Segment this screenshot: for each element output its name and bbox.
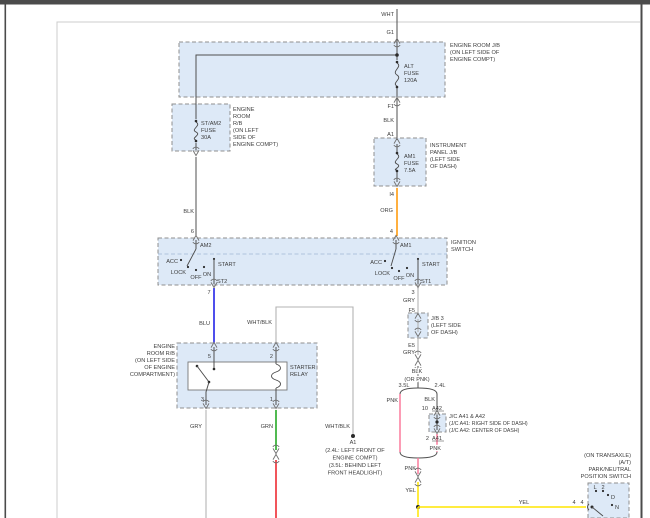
wire-color-label: PNK	[404, 466, 416, 472]
component-label: J/C A41 & A42	[449, 414, 485, 420]
component-label: OF DASH)	[431, 330, 458, 336]
component-label: (ON LEFT SIDE	[135, 358, 175, 364]
jc-junction-dot	[435, 420, 438, 423]
position-label: LOCK	[171, 270, 187, 276]
off-contact	[398, 270, 400, 272]
starter-relay-inner-box	[188, 362, 287, 390]
wiring-diagram: WHT G1 ENGINE ROOM J/B (ON LEFT SIDE OF …	[0, 0, 650, 518]
fuse-label: ALT	[404, 64, 414, 70]
component-label: (ON LEFT SIDE OF	[450, 50, 500, 56]
engine-variant-label: 2.4L	[435, 383, 446, 389]
component-label: (LEFT SIDE	[431, 323, 461, 329]
pin-label: 4	[572, 500, 575, 506]
terminal-label: ST1	[421, 279, 431, 285]
position-label: OFF	[393, 276, 405, 282]
pin-label: 10	[422, 406, 428, 412]
wire-color-label: WHT	[381, 12, 394, 18]
pin-label: 6	[191, 229, 194, 235]
component-label: ENGINE	[233, 107, 255, 113]
pin-label: 2	[270, 354, 273, 360]
fuse-label: FUSE	[404, 71, 419, 77]
ground-note: ENGINE COMPT)	[332, 456, 377, 462]
component-label: PARK/NEUTRAL	[589, 467, 631, 473]
component-label: SIDE OF	[233, 135, 256, 141]
component-label: OF DASH)	[430, 164, 457, 170]
wire-color-label: BLK	[424, 397, 435, 403]
component-label: (LEFT SIDE	[430, 157, 460, 163]
pin-label: 5	[208, 354, 211, 360]
fuse-label: ST/AM2	[201, 121, 221, 127]
frame-top	[0, 0, 650, 5]
component-label: STARTER	[290, 365, 316, 371]
component-label: PANEL J/B	[430, 150, 458, 156]
component-label: IGNITION	[451, 240, 476, 246]
terminal-label: AM2	[200, 243, 212, 249]
junction-dot	[395, 53, 399, 57]
connector-label: F1	[387, 104, 394, 110]
wire-color-label: PNK	[386, 398, 398, 404]
pin-label: 3	[201, 397, 204, 403]
component-label: ENGINE COMPT)	[450, 57, 495, 63]
position-label: 2	[601, 485, 604, 491]
component-label: (ON TRANSAXLE)	[584, 453, 631, 459]
frame-right	[641, 0, 643, 518]
fuse-label: 7.5A	[404, 168, 416, 174]
component-label: ROOM R/B	[147, 351, 176, 357]
wire-color-label: PNK	[429, 446, 441, 452]
pin-label: 2	[426, 436, 429, 442]
component-label: OF ENGINE	[144, 365, 175, 371]
component-label: SWITCH	[451, 247, 473, 253]
component-label: (A/T)	[619, 460, 632, 466]
connector-label: A1	[387, 132, 394, 138]
position-label: D	[611, 495, 615, 501]
fuse-label: FUSE	[201, 128, 216, 134]
wire-color-label: BLK	[183, 209, 194, 215]
component-label: R/B	[233, 121, 243, 127]
pin-label: 1	[270, 397, 273, 403]
component-label: (ON LEFT	[233, 128, 259, 134]
component-label: ENGINE COMPT)	[233, 142, 278, 148]
position-label: ON	[406, 273, 414, 279]
ground-note: FRONT HEADLIGHT)	[328, 471, 383, 477]
on-contact	[406, 267, 408, 269]
component-label: (J/C A41: RIGHT SIDE OF DASH)	[449, 421, 528, 427]
pin-label: 7	[207, 290, 210, 296]
engine-variant-label: 3.5L	[399, 383, 410, 389]
component-label: (J/C A42: CENTER OF DASH)	[449, 428, 520, 434]
wire-color-label: GRY	[190, 424, 202, 430]
position-label: OFF	[190, 275, 202, 281]
lock-contact	[391, 267, 393, 269]
component-label: COMPARTMENT)	[130, 372, 175, 378]
acc-contact	[180, 259, 182, 261]
connector-label: I4	[389, 192, 394, 198]
fuse-dot	[195, 140, 198, 143]
wiring-diagram-page: WHT G1 ENGINE ROOM J/B (ON LEFT SIDE OF …	[0, 0, 650, 518]
component-label: ENGINE ROOM J/B	[450, 43, 500, 49]
wire-color-label: GRY	[403, 350, 415, 356]
pin-label: 3	[411, 290, 414, 296]
component-label: INSTRUMENT	[430, 143, 467, 149]
fuse-dot	[396, 61, 399, 64]
on-contact	[203, 266, 205, 268]
wire-color-label: YEL	[405, 488, 416, 494]
ground-point-a1	[351, 434, 355, 438]
component-label: RELAY	[290, 372, 308, 378]
fuse-dot	[396, 152, 399, 155]
position-label: ON	[203, 272, 211, 278]
position-label: START	[218, 262, 236, 268]
relay-contact	[213, 368, 216, 371]
wire-color-label: GRY	[403, 298, 415, 304]
fuse-label: AM1	[404, 154, 416, 160]
position-label: N	[615, 505, 619, 511]
wire-color-label: ORG	[380, 208, 393, 214]
pnp-contact-n	[611, 504, 613, 506]
terminal-label: AM1	[400, 243, 412, 249]
wire-color-label: YEL	[519, 500, 530, 506]
pin-label: 4	[390, 229, 393, 235]
wire-color-label: BLU	[199, 321, 210, 327]
fuse-dot	[396, 86, 399, 89]
fuse-label: 30A	[201, 135, 211, 141]
frame-left	[5, 0, 7, 518]
connector-label: E5	[408, 343, 415, 349]
terminal-label: ST2	[217, 279, 227, 285]
component-label: ROOM	[233, 114, 251, 120]
wire-color-label: WHT/BLK	[247, 320, 272, 326]
component-label: ENGINE	[154, 344, 176, 350]
wire-color-label: GRN	[261, 424, 273, 430]
merge-branch	[400, 452, 437, 458]
pnp-contact-d	[607, 494, 609, 496]
off-contact	[195, 269, 197, 271]
component-label: POSITION SWITCH	[581, 474, 631, 480]
position-label: ACC	[166, 259, 178, 265]
connector-label: G1	[387, 30, 394, 36]
component-label: J/B 3	[431, 316, 444, 322]
wire-color-label: WHT/BLK	[325, 424, 350, 430]
ground-label: A1	[350, 440, 357, 446]
wire-color-label: BLK	[383, 118, 394, 124]
pin-label: 4	[580, 500, 583, 506]
position-label: LOCK	[375, 271, 391, 277]
lock-contact	[187, 266, 189, 268]
connector-label: F5	[408, 308, 415, 314]
position-label: ACC	[370, 260, 382, 266]
acc-contact	[384, 260, 386, 262]
ground-note: (2.4L: LEFT FRONT OF	[325, 448, 385, 454]
fuse-dot	[396, 170, 399, 173]
fuse-label: FUSE	[404, 161, 419, 167]
position-label: L	[593, 485, 596, 491]
wire-color-label: BLK	[412, 369, 423, 375]
position-label: START	[422, 262, 440, 268]
fuse-dot	[195, 120, 198, 123]
ground-note: (3.5L: BEHIND LEFT	[329, 463, 382, 469]
fuse-label: 120A	[404, 78, 417, 84]
